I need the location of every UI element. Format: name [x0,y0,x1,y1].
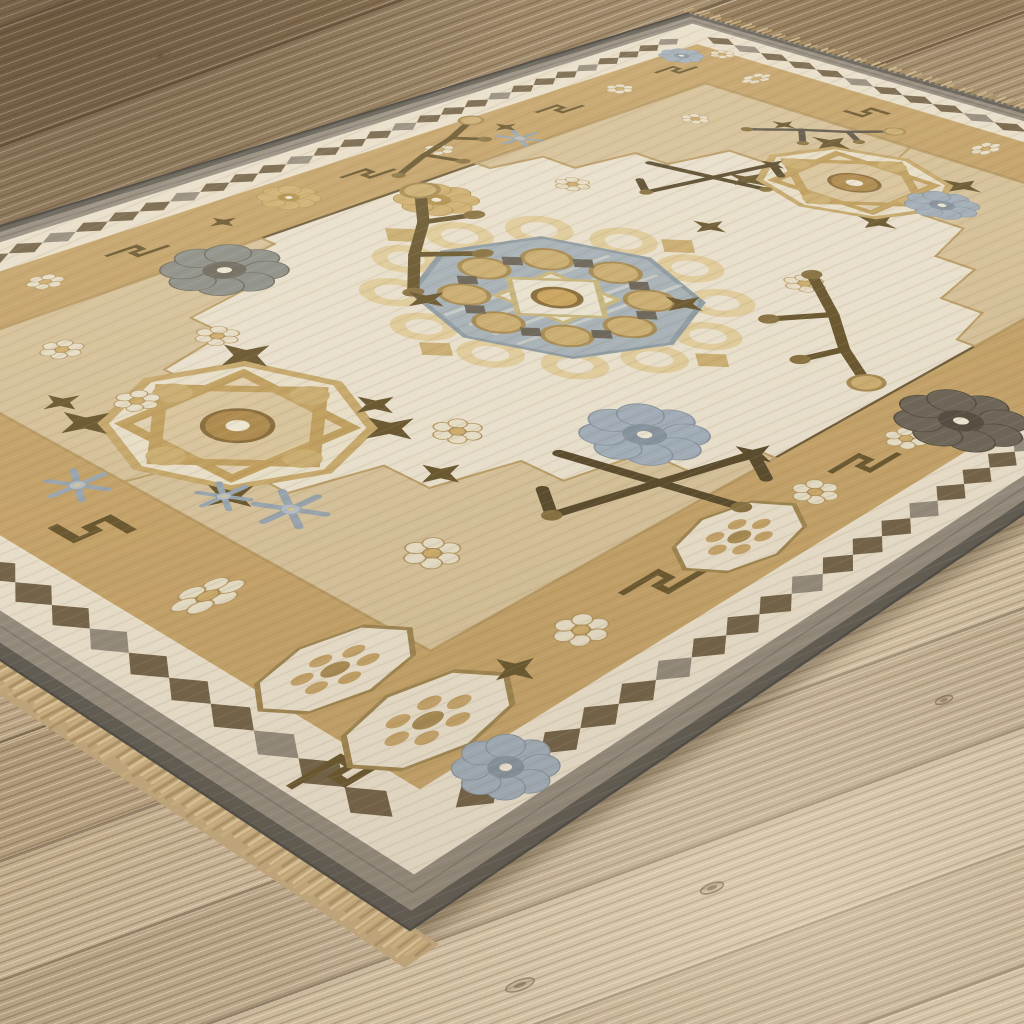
room-scene: Ivory and camel oriental medallion area … [0,0,1024,1024]
